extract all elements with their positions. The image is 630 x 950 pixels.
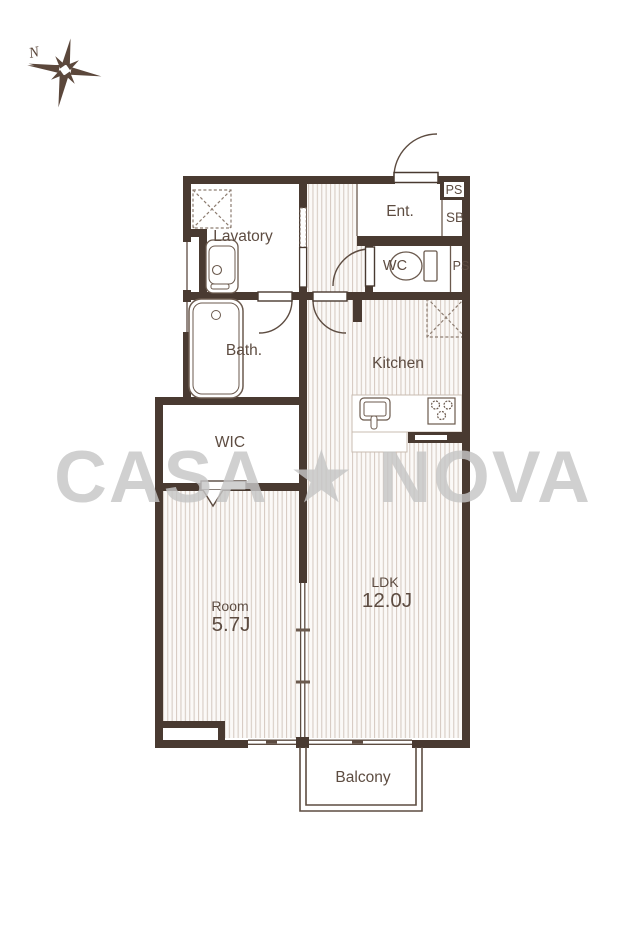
label-ps-right: PS bbox=[453, 259, 470, 273]
bedroom-alcove bbox=[163, 728, 218, 740]
label-wic: WIC bbox=[215, 434, 245, 451]
washing-machine-pan-icon bbox=[193, 190, 231, 228]
hallway-floor bbox=[307, 184, 356, 236]
label-entrance: Ent. bbox=[386, 203, 414, 220]
compass-north-label: N bbox=[27, 44, 42, 62]
lavatory-pocket-door bbox=[300, 208, 307, 287]
label-balcony: Balcony bbox=[335, 769, 390, 786]
hallway-floor-lower bbox=[307, 236, 365, 292]
label-ps-top: PS bbox=[446, 183, 463, 197]
kitchen-counter-return bbox=[352, 432, 407, 452]
label-bath: Bath. bbox=[226, 342, 262, 359]
window-tick bbox=[266, 740, 277, 744]
label-room-size: 5.7J bbox=[212, 613, 251, 636]
label-ldk-size: 12.0J bbox=[362, 589, 412, 612]
stove-icon bbox=[428, 398, 455, 424]
label-lavatory: Lavatory bbox=[213, 228, 273, 245]
window-tick bbox=[352, 740, 363, 744]
vanity-sink-icon bbox=[206, 240, 238, 293]
label-ldk: LDK bbox=[371, 574, 399, 590]
label-wc: WC bbox=[383, 258, 407, 274]
entry-door bbox=[394, 134, 438, 183]
label-room: Room bbox=[211, 598, 248, 614]
bath-door bbox=[258, 292, 292, 333]
floor-plan: N Lavatory Ent. PS SB WC PS Bath. Kitche… bbox=[0, 0, 630, 950]
floorplan-page: N Lavatory Ent. PS SB WC PS Bath. Kitche… bbox=[0, 0, 630, 950]
label-kitchen: Kitchen bbox=[372, 355, 424, 372]
compass: N bbox=[21, 32, 107, 114]
label-sb: SB bbox=[446, 210, 464, 225]
counter-bar-slot bbox=[415, 435, 447, 440]
